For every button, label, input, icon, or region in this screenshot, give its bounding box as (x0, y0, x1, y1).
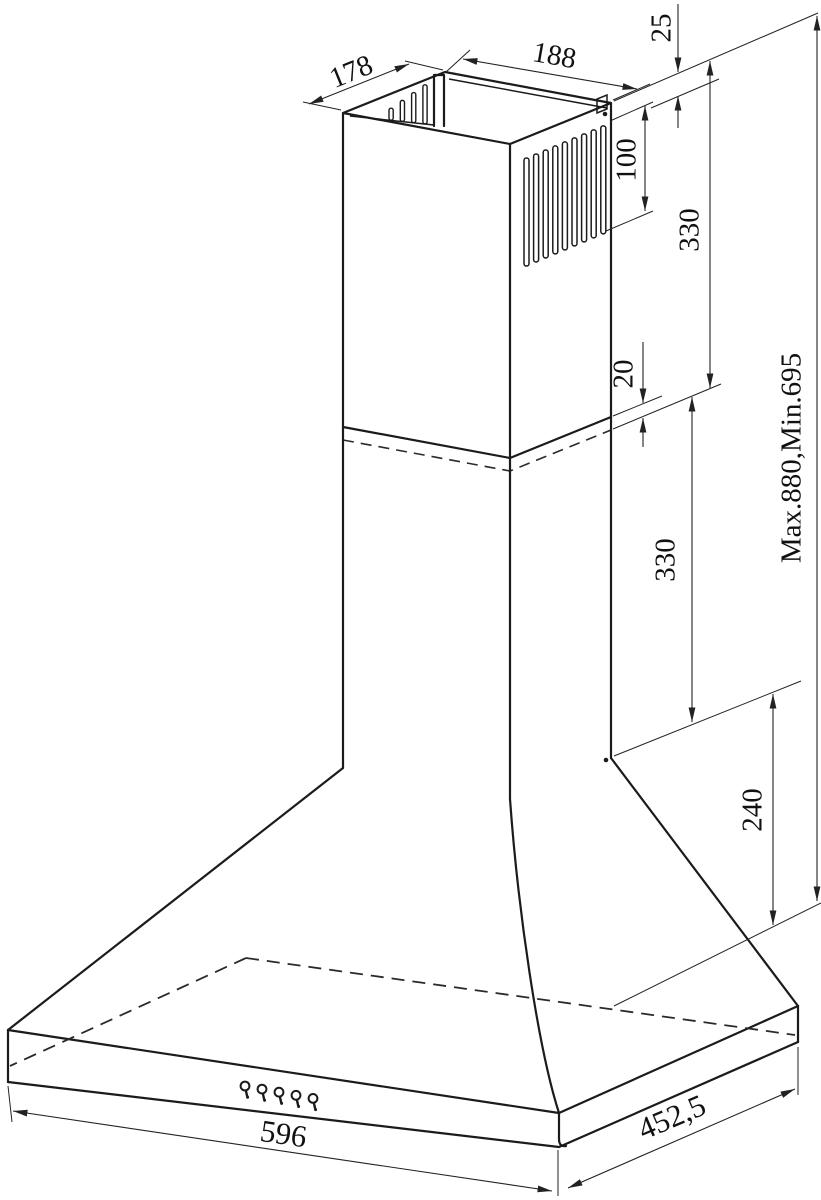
dim-hood-width-596: 596 (8, 1086, 558, 1196)
control-button (241, 1082, 250, 1091)
dim-label-20: 20 (608, 360, 640, 389)
dim-label-452-5: 452,5 (633, 1087, 711, 1146)
inner-slot (412, 93, 416, 123)
canopy-left-slope-edge (8, 768, 343, 1030)
canopy-right-slope-edge (611, 758, 798, 1006)
control-buttons (241, 1082, 318, 1112)
bottom-reference-line (614, 903, 821, 1006)
flue-top-face (343, 72, 611, 144)
inner-slot (423, 85, 427, 124)
vent-louvers (524, 126, 606, 266)
louver-slot (534, 154, 539, 262)
dim-label-100: 100 (611, 138, 643, 182)
control-button-base (297, 1105, 300, 1108)
seam-overlap-hidden-line (343, 430, 611, 471)
dim-label-25: 25 (646, 14, 678, 43)
dim-label-max-min: Max.880,Min.695 (776, 353, 808, 563)
louver-slot (553, 146, 558, 254)
inner-slot (400, 100, 404, 121)
overlap-reference-line (613, 384, 721, 429)
control-button-stem (280, 1096, 281, 1102)
control-button-base (314, 1108, 317, 1111)
control-button (258, 1085, 267, 1094)
rim-hidden-back-edge-left (10, 958, 246, 1066)
control-button-stem (297, 1100, 298, 1106)
dim-label-330-upper: 330 (674, 208, 706, 252)
dim-label-240: 240 (737, 788, 769, 832)
seam-line (343, 417, 611, 458)
louver-slot (562, 142, 567, 250)
flue-inner-wall-edge (449, 79, 607, 108)
control-button-base (263, 1099, 266, 1102)
dim-canopy-height-240: 240 (737, 694, 773, 925)
dim-hood-depth-452-5: 452,5 (568, 1047, 798, 1188)
control-button (275, 1088, 284, 1097)
louver-slot (582, 134, 587, 242)
screw-bottom (604, 758, 609, 763)
inner-slot (389, 108, 393, 120)
rim-front-corner-edge (559, 1113, 566, 1146)
control-button-stem (314, 1103, 315, 1109)
control-button-stem (246, 1090, 247, 1096)
rim-hidden-back-edge-right (246, 958, 795, 1035)
dim-label-188: 188 (530, 36, 578, 75)
chimney-lower-section (343, 417, 611, 799)
louver-slot (524, 158, 529, 266)
top-reference-line (614, 13, 818, 101)
control-button (309, 1094, 318, 1103)
dim-overlap-20: 20 (608, 342, 662, 447)
control-button (292, 1091, 301, 1100)
control-button-base (246, 1096, 249, 1099)
dim-label-330-lower: 330 (650, 538, 682, 582)
mounting-tab (434, 75, 444, 126)
hood-technical-drawing: 178 188 25 100 330 20 330 Ma (0, 0, 821, 1200)
dim-vent-height-100: 100 (606, 102, 653, 231)
screw-top (603, 112, 608, 117)
louver-slot (601, 126, 606, 234)
dim-label-596: 596 (258, 1113, 309, 1154)
control-button-stem (263, 1093, 264, 1099)
louver-slot (572, 138, 577, 246)
dim-label-178: 178 (325, 49, 377, 95)
canopy-front-slope-edge (510, 799, 559, 1113)
louver-slot (591, 130, 596, 238)
telescopic-seam (343, 417, 611, 471)
chimney-upper-section (343, 72, 611, 458)
corner-tab (597, 95, 607, 113)
inner-vent-slots (389, 85, 427, 124)
louver-slot (543, 150, 548, 258)
drawing-canvas: 178 188 25 100 330 20 330 Ma (0, 0, 821, 1200)
control-button-base (280, 1102, 283, 1105)
